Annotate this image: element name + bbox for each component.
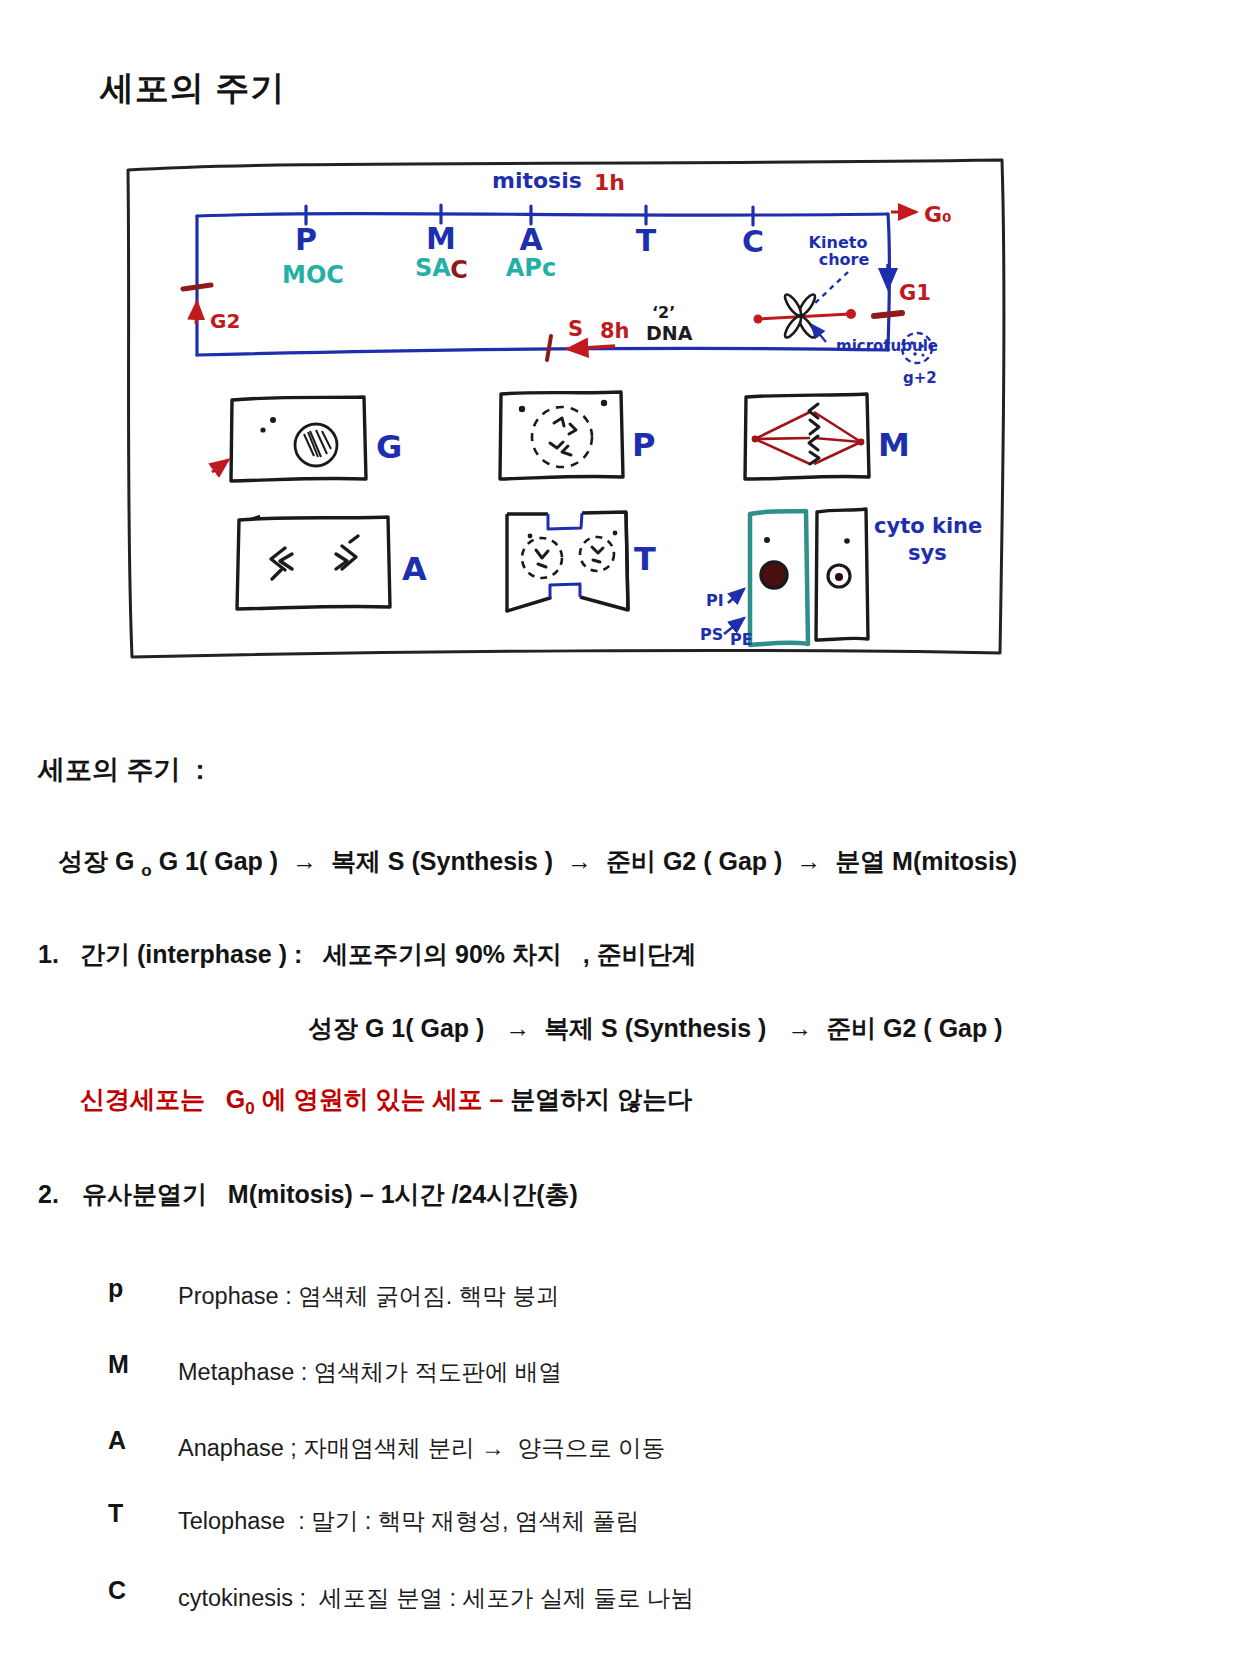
- phase-row-telophase: T Telophase : 말기 : 핵막 재형성, 염색체 풀림: [0, 1505, 1260, 1545]
- g2-tick: [183, 285, 211, 289]
- section2-number: 2.: [38, 1180, 82, 1209]
- daughter-cell-note: g+2: [903, 369, 937, 387]
- phase-row-cytokinesis: C cytokinesis : 세포질 분열 : 세포가 실제 둘로 나뉨: [0, 1582, 1260, 1622]
- s-duration: 8h: [600, 319, 630, 343]
- cell-label-m: M: [878, 426, 910, 464]
- phase-desc-text: 염색체가 적도판에 배열: [307, 1359, 562, 1385]
- cell-box-p: [500, 392, 623, 479]
- phase-name: Metaphase :: [178, 1359, 307, 1385]
- cell-box-a: [237, 516, 390, 609]
- overview-flow-rest: G 1( Gap ) → 복제 S (Synthesis ) → 준비 G2 (…: [152, 847, 1017, 875]
- cell-cycle-sketch: P M A T C MOC SA C APc mitosis 1h G₀ G2 …: [110, 148, 1020, 668]
- phase-desc-text: 세포질 분열 : 세포가 실제 둘로 나뉨: [306, 1585, 694, 1611]
- phase-desc-text: 염색체 굵어짐. 핵막 붕괴: [292, 1283, 560, 1309]
- sketch-border: [128, 160, 1004, 657]
- cytokinesis-cells: [750, 509, 868, 645]
- s-label: S: [568, 317, 583, 341]
- checkpoint-moc: MOC: [282, 261, 344, 289]
- g0-note-black: 분열하지 않는다: [510, 1085, 692, 1113]
- kinetochore-pointer-line: [812, 272, 848, 306]
- phase-letter-t: T: [636, 223, 657, 258]
- cell-box-g: [231, 397, 366, 481]
- section1-text: 간기 (interphase ) : 세포주기의 90% 차지 , 준비단계: [80, 940, 697, 968]
- g2-arrow: [196, 302, 197, 324]
- ps-label: PS: [700, 625, 723, 644]
- checkpoint-sac-part1: SA: [415, 254, 451, 282]
- phase-row-letter: C: [108, 1576, 126, 1605]
- phase-row-text: Telophase : 말기 : 핵막 재형성, 염색체 풀림: [178, 1505, 639, 1537]
- phase-name: Anaphase ;: [178, 1435, 297, 1461]
- dna-copy-number: ‘2’: [652, 303, 675, 322]
- section1-title: 1.간기 (interphase ) : 세포주기의 90% 차지 , 준비단계: [38, 938, 697, 971]
- phase-row-letter: T: [108, 1499, 123, 1528]
- cell-label-g: G: [376, 428, 402, 466]
- phase-letter-m: M: [426, 221, 456, 256]
- phase-row-text: cytokinesis : 세포질 분열 : 세포가 실제 둘로 나뉨: [178, 1582, 694, 1614]
- g0-label: G₀: [924, 202, 952, 227]
- section1-number: 1.: [38, 940, 80, 969]
- checkpoint-sac-part2: C: [450, 256, 468, 284]
- phase-name: cytokinesis :: [178, 1585, 306, 1611]
- cell-label-p: P: [632, 426, 655, 464]
- g0-note-red2: 에 영원히 있는 세포 –: [255, 1085, 511, 1113]
- phase-desc-text: 말기 : 핵막 재형성, 염색체 풀림: [305, 1508, 639, 1534]
- pi-label: PI: [706, 591, 724, 610]
- cell-label-t: T: [634, 540, 656, 578]
- phase-desc-text: 자매염색체 분리 → 양극으로 이동: [297, 1435, 665, 1461]
- phase-row-anaphase: A Anaphase ; 자매염색체 분리 → 양극으로 이동: [0, 1432, 1260, 1472]
- cell-box-m: [745, 394, 869, 479]
- cytokinesis-label-line1: cyto kine: [874, 514, 982, 538]
- phase-row-letter: M: [108, 1350, 129, 1379]
- phase-row-metaphase: M Metaphase : 염색체가 적도판에 배열: [0, 1356, 1260, 1396]
- kinetochore-label-line2: chore: [819, 250, 870, 269]
- section2-title: 2.유사분열기 M(mitosis) – 1시간 /24시간(총): [38, 1178, 578, 1211]
- phase-row-text: Anaphase ; 자매염색체 분리 → 양극으로 이동: [178, 1432, 665, 1464]
- pi-arrow: [728, 589, 744, 603]
- phase-row-text: Metaphase : 염색체가 적도판에 배열: [178, 1356, 562, 1388]
- g0-note-red: 신경세포는 G: [80, 1085, 245, 1113]
- phase-name: Prophase :: [178, 1283, 292, 1309]
- mitosis-label: mitosis: [492, 168, 582, 193]
- cell-box-t: [507, 512, 628, 611]
- section1-flow: 성장 G 1( Gap ) → 복제 S (Synthesis ) → 준비 G…: [308, 1012, 1003, 1045]
- dna-label: DNA: [646, 322, 693, 344]
- cell-label-a: A: [402, 550, 427, 588]
- phase-letter-c: C: [742, 224, 764, 259]
- phase-row-text: Prophase : 염색체 굵어짐. 핵막 붕괴: [178, 1280, 559, 1312]
- checkpoint-apc: APc: [506, 254, 556, 282]
- s-tick: [547, 336, 551, 360]
- mitosis-duration: 1h: [594, 170, 625, 195]
- g0-note-sub: 0: [245, 1099, 254, 1118]
- g-box-pointer: [212, 460, 228, 472]
- section2-text: 유사분열기 M(mitosis) – 1시간 /24시간(총): [82, 1180, 578, 1208]
- phase-row-letter: p: [108, 1274, 123, 1303]
- g2-label: G2: [210, 309, 240, 333]
- notes-page: 세포의 주기 P M A: [0, 0, 1260, 1680]
- overview-flow-sub: o: [141, 861, 151, 880]
- phase-row-letter: A: [108, 1426, 126, 1455]
- cytokinesis-label-line2: sys: [908, 541, 947, 565]
- phase-row-prophase: p Prophase : 염색체 굵어짐. 핵막 붕괴: [0, 1280, 1260, 1320]
- g1-label: G1: [899, 281, 931, 305]
- overview-flow-pre: 성장 G: [58, 847, 141, 875]
- g0-note: 신경세포는 G0 에 영원히 있는 세포 – 분열하지 않는다: [80, 1083, 692, 1119]
- g1-tick: [874, 313, 902, 316]
- overview-flow: 성장 G o G 1( Gap ) → 복제 S (Synthesis ) → …: [58, 845, 1017, 881]
- phase-name: Telophase :: [178, 1508, 305, 1534]
- pe-label: PE: [730, 630, 753, 649]
- phase-letter-a: A: [519, 222, 543, 257]
- section-heading: 세포의 주기 :: [38, 752, 205, 788]
- phase-letter-p: P: [295, 222, 317, 257]
- page-title: 세포의 주기: [100, 66, 285, 112]
